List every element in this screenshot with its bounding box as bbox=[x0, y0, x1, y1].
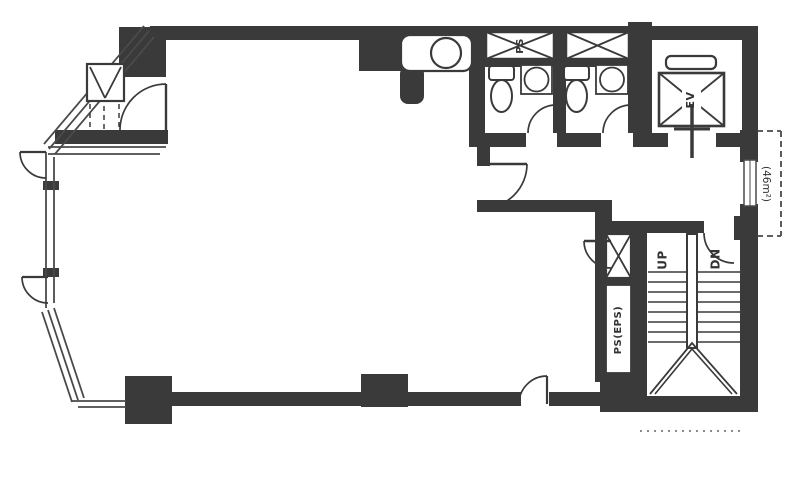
stairhall-door-gap bbox=[704, 221, 734, 233]
wall-right-upper bbox=[740, 130, 758, 162]
area-annotation-label: (46m²) bbox=[760, 166, 772, 202]
column-top-mid bbox=[359, 31, 402, 71]
wall-corridor-left bbox=[477, 133, 490, 166]
hand-sink-icon bbox=[521, 65, 552, 94]
floor-plan-svg: PS EV UP DN PS(EPS) (46m²) bbox=[0, 0, 791, 477]
vent-shaft-box bbox=[566, 32, 629, 59]
stall2-door-gap bbox=[601, 133, 633, 147]
wall-stair-left bbox=[595, 225, 606, 382]
column-bottom-left bbox=[125, 376, 172, 424]
up-label: UP bbox=[656, 250, 670, 270]
wall-corner-room-bottom bbox=[55, 130, 168, 144]
dn-label: DN bbox=[709, 248, 723, 269]
wall-bottom-stair bbox=[631, 396, 758, 412]
ps-shaft-label: PS bbox=[515, 38, 526, 54]
elevator-counterweight bbox=[666, 56, 716, 69]
wall-ev-right bbox=[742, 26, 758, 147]
floor-plan-page: PS EV UP DN PS(EPS) (46m²) bbox=[0, 0, 791, 477]
ev-label: EV bbox=[684, 91, 697, 108]
wall-stairhall-top bbox=[606, 221, 706, 233]
wall-psroom-right bbox=[631, 228, 647, 412]
wash-basin-icon bbox=[401, 35, 472, 71]
exit-door-gap bbox=[521, 392, 549, 406]
hand-sink-icon bbox=[596, 65, 628, 94]
wall-stair-right bbox=[740, 233, 758, 412]
wall-right-lower bbox=[740, 204, 758, 234]
column-bottom-mid bbox=[361, 374, 408, 407]
ps-eps-label: PS(EPS) bbox=[613, 306, 624, 355]
toilet-icon bbox=[564, 66, 589, 112]
stair-center-divider bbox=[687, 234, 697, 348]
stall1-door-gap bbox=[526, 133, 557, 147]
toilet-icon bbox=[489, 66, 514, 112]
